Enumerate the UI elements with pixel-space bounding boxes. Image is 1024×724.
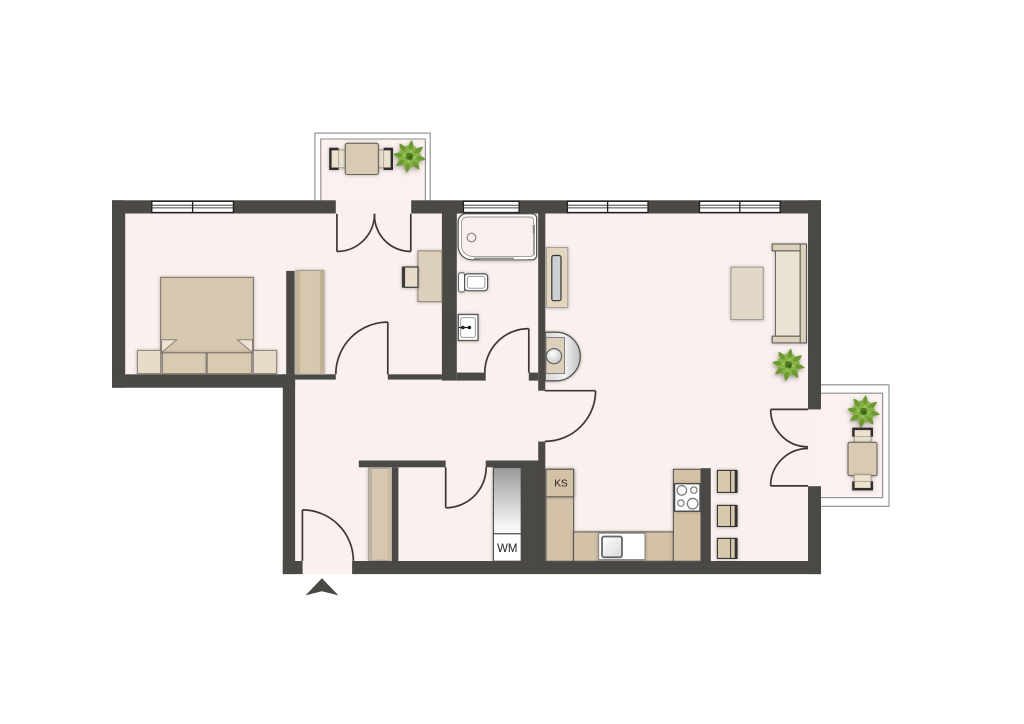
- svg-text:KS: KS: [554, 478, 568, 489]
- svg-text:WM: WM: [497, 543, 517, 555]
